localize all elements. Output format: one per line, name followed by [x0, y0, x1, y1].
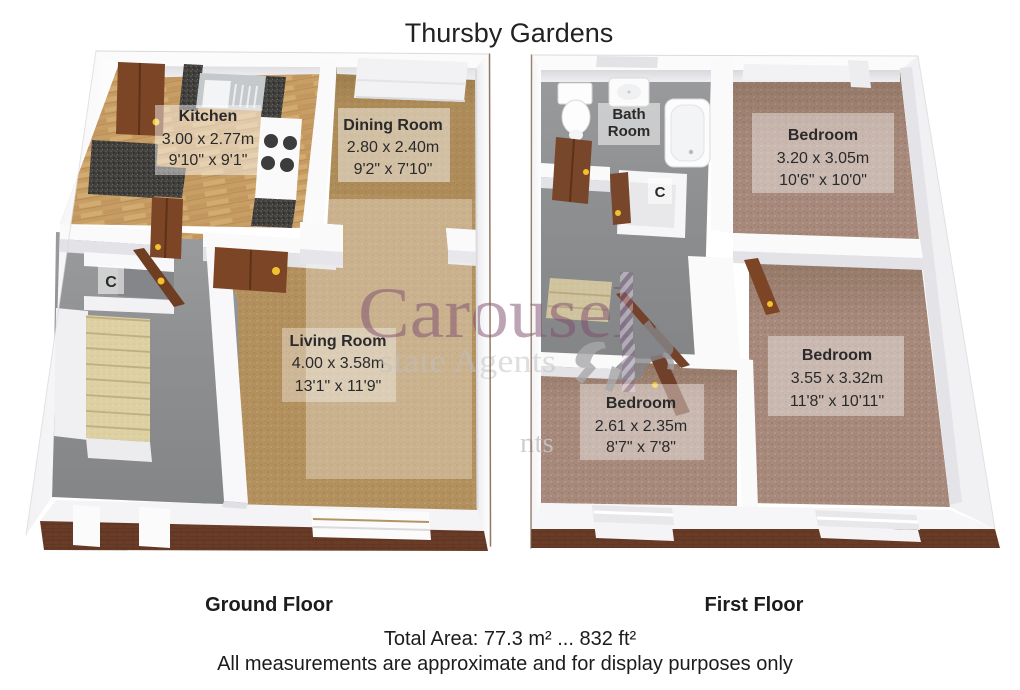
svg-text:state Agents: state Agents [379, 344, 556, 380]
svg-text:nts: nts [520, 427, 554, 459]
svg-text:13'1" x 11'9": 13'1" x 11'9" [295, 378, 382, 395]
svg-text:4.00 x 3.58m: 4.00 x 3.58m [292, 355, 385, 372]
svg-text:Bedroom: Bedroom [802, 347, 872, 364]
svg-text:Room: Room [608, 123, 651, 140]
svg-text:Ground Floor: Ground Floor [205, 594, 333, 616]
svg-text:Bedroom: Bedroom [788, 127, 858, 144]
svg-text:Dining Room: Dining Room [343, 117, 443, 134]
svg-text:3.20 x 3.05m: 3.20 x 3.05m [777, 150, 870, 167]
svg-text:First Floor: First Floor [705, 594, 804, 616]
svg-text:10'6" x 10'0": 10'6" x 10'0" [779, 172, 867, 189]
svg-text:9'2" x 7'10": 9'2" x 7'10" [354, 161, 433, 178]
svg-text:3.55 x 3.32m: 3.55 x 3.32m [791, 370, 884, 387]
svg-text:8'7" x 7'8": 8'7" x 7'8" [606, 439, 676, 456]
svg-text:Carousel: Carousel [358, 273, 634, 353]
svg-text:3.00 x 2.77m: 3.00 x 2.77m [162, 131, 255, 148]
svg-text:C: C [105, 274, 117, 291]
svg-text:2.80 x 2.40m: 2.80 x 2.40m [347, 139, 440, 156]
svg-text:9'10" x 9'1": 9'10" x 9'1" [169, 152, 248, 169]
svg-text:All measurements are approxima: All measurements are approximate and for… [217, 653, 793, 675]
svg-text:Bath: Bath [612, 106, 645, 123]
svg-text:11'8" x 10'11": 11'8" x 10'11" [790, 393, 884, 410]
svg-text:Total Area: 77.3 m² ... 832 ft: Total Area: 77.3 m² ... 832 ft² [384, 628, 637, 650]
svg-text:Kitchen: Kitchen [179, 108, 238, 125]
svg-text:Thursby Gardens: Thursby Gardens [405, 18, 614, 48]
svg-text:Bedroom: Bedroom [606, 395, 676, 412]
svg-text:2.61 x 2.35m: 2.61 x 2.35m [595, 418, 688, 435]
svg-text:C: C [655, 184, 666, 201]
